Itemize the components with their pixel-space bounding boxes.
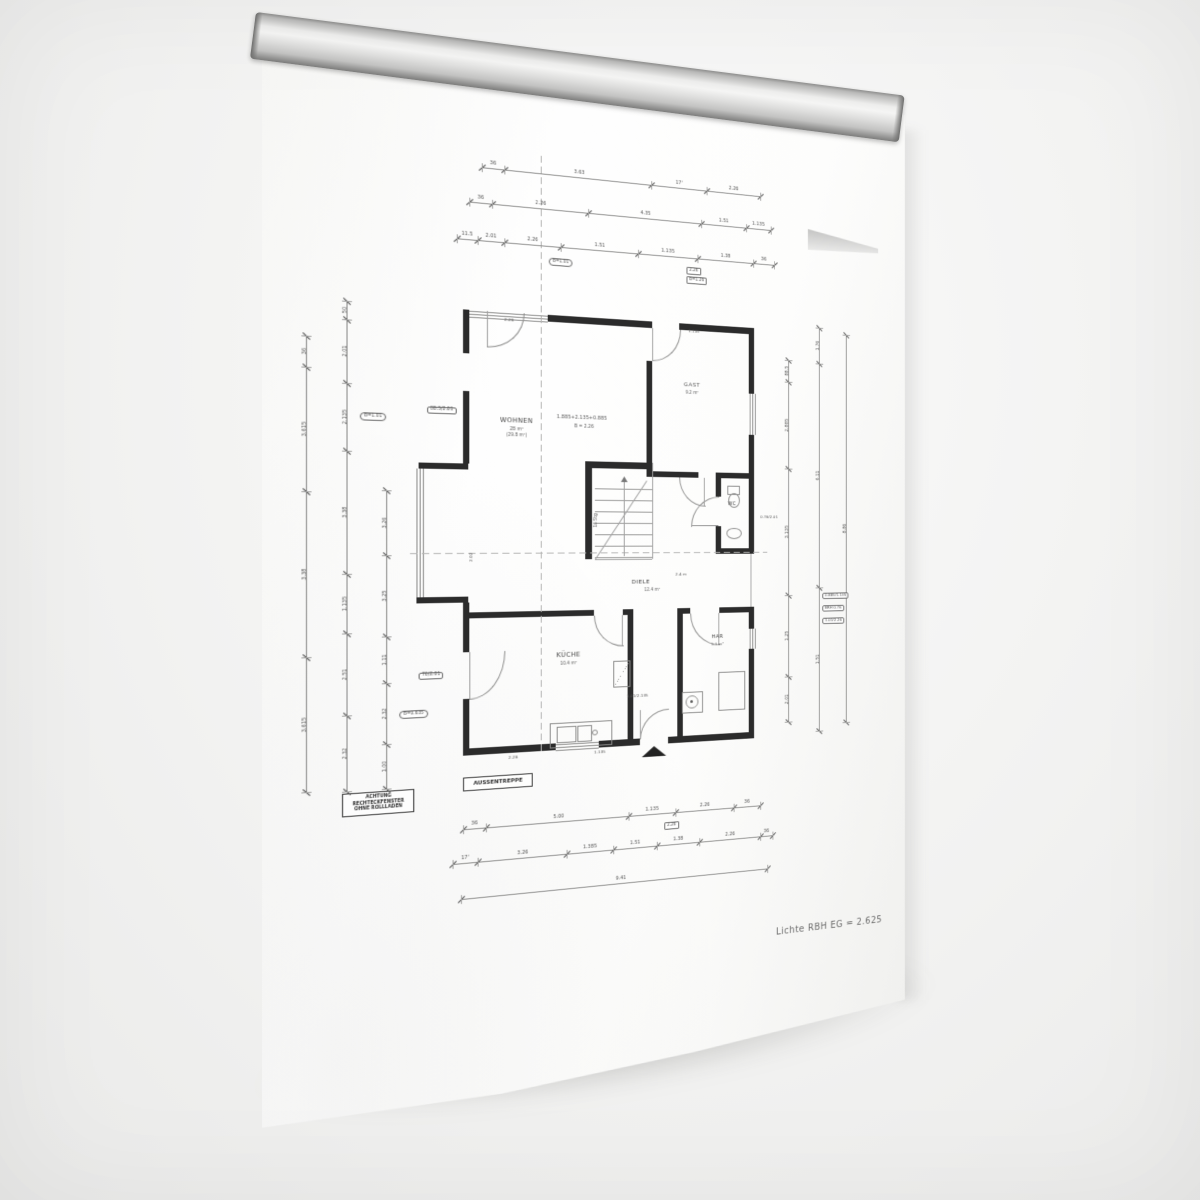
room-label-diele: DIELE <box>621 579 661 586</box>
extension-line <box>342 451 352 452</box>
dimension-value: 3.38 <box>301 559 308 590</box>
wall <box>647 361 653 471</box>
dimension-value: 3.615 <box>301 709 308 740</box>
micro-annotation: B = 2.26 <box>574 425 593 430</box>
door-leaf <box>469 652 470 699</box>
micro-annotation: 1.135 <box>688 329 699 334</box>
micro-annotation: 2.02 <box>470 553 475 562</box>
dimension-value: 2.32 <box>382 698 389 729</box>
stove-icon <box>613 660 630 687</box>
dimension-value: 2.135 <box>342 401 349 432</box>
product-photo: WOHNEN 28 m² (29.8 m²) GAST 9.2 m² WC DI… <box>0 0 1200 1200</box>
extension-line <box>707 187 708 195</box>
extension-line <box>382 490 392 491</box>
extension-line <box>760 802 761 810</box>
dimension-value: 2.01 <box>785 685 790 712</box>
dimension-chain: 88.52.8853.1351.252.01 <box>788 360 789 722</box>
extension-line <box>698 255 699 263</box>
dimension-chain: 1.766.111.51 <box>819 328 820 731</box>
room-label-wc: WC <box>723 502 741 507</box>
stair-edge <box>652 463 653 559</box>
dimension-value: 3.38 <box>342 497 349 528</box>
door-leaf <box>652 328 653 360</box>
bay-window <box>416 468 423 599</box>
dimension-tag: B=0.635 <box>399 710 428 719</box>
extension-line <box>613 846 614 855</box>
extension-line <box>785 595 793 596</box>
extension-line <box>760 193 761 201</box>
extension-line <box>699 838 700 846</box>
wall <box>463 699 469 756</box>
micro-annotation: BRH 0.76 <box>822 605 844 611</box>
dimension-value: 3.26 <box>382 507 389 538</box>
dimension-chain: 3.263.251.112.321.00B=0.635 <box>386 490 387 789</box>
dimension-tag: 2.26 <box>687 267 701 276</box>
extension-line <box>382 555 392 556</box>
door-leaf <box>622 615 623 645</box>
dimension-value: 3.615 <box>301 413 308 444</box>
stair-wall <box>585 461 652 469</box>
extension-line <box>651 181 652 190</box>
dimension-value: 1.76 <box>816 332 821 359</box>
micro-annotation: 0.76/2.01 <box>760 515 778 519</box>
dimension-value: 3.25 <box>382 581 389 612</box>
extension-line <box>701 220 702 228</box>
dimension-value: 2.885 <box>785 411 790 438</box>
extension-line <box>675 808 676 816</box>
door-leaf <box>640 710 641 738</box>
plan-sheet: WOHNEN 28 m² (29.8 m²) GAST 9.2 m² WC DI… <box>442 15 919 1115</box>
wall <box>463 391 469 464</box>
dimension-chain: 8.86 <box>846 335 847 722</box>
wc-sink <box>726 528 741 539</box>
stair-walkline <box>624 480 625 556</box>
micro-annotation: 76/2.01 <box>419 672 444 680</box>
extension-line <box>567 850 568 859</box>
extension-line <box>588 209 589 218</box>
kitchen-sink <box>557 726 577 744</box>
wall <box>463 603 469 653</box>
extension-line <box>561 243 562 252</box>
har-window <box>750 629 756 649</box>
dimension-chain: 502.012.1353.381.1352.512.32B=1.01 <box>346 301 347 792</box>
dimension-tag: B=1.26 <box>687 276 707 285</box>
terrace-door-line <box>751 554 752 607</box>
gast-window <box>750 394 756 435</box>
stair-wall <box>585 468 592 559</box>
door-leaf <box>691 525 718 526</box>
micro-annotation: 2.26 <box>504 318 514 323</box>
extension-line <box>461 895 462 904</box>
paper-sheet <box>262 29 905 1131</box>
micro-annotation: 0.885/1.135 <box>822 592 848 598</box>
dimension-value: 6.11 <box>816 462 821 489</box>
dimension-value: 88.5 <box>785 357 790 384</box>
extension-line <box>816 587 824 588</box>
wall <box>749 649 754 739</box>
wall <box>719 607 754 613</box>
dimension-value: 36 <box>301 335 308 366</box>
wall <box>463 309 469 353</box>
dimension-value: 1.135 <box>342 588 349 619</box>
dimension-chain: 363.6153.383.615 <box>306 336 307 793</box>
extension-line <box>657 842 658 851</box>
micro-annotation: 88.5/2.01 <box>427 406 456 414</box>
kitchen-sink <box>577 725 592 742</box>
dimension-value: 8.86 <box>843 515 848 542</box>
dimension-value: 1.51 <box>816 646 821 673</box>
door-leaf <box>704 478 705 506</box>
wall <box>647 321 653 328</box>
wall-bay <box>419 463 469 470</box>
micro-annotation: 2.26 <box>508 755 517 760</box>
extension-line <box>767 865 768 873</box>
extension-line <box>638 250 639 259</box>
extension-line <box>785 468 793 469</box>
wall <box>716 473 721 497</box>
dimension-tag: 2.26 <box>664 821 678 830</box>
wall-bay <box>416 597 468 604</box>
dimension-value: 1.00 <box>382 751 389 782</box>
extension-line <box>629 812 630 821</box>
micro-annotation: 16 Stg <box>595 513 600 527</box>
micro-annotation: 2.4 m <box>675 573 686 577</box>
dimension-value: 1.11 <box>382 645 389 676</box>
extension-line <box>301 491 311 492</box>
wall <box>749 435 754 554</box>
wall <box>677 614 683 743</box>
dimension-tag: B=1.01 <box>360 412 386 421</box>
room-label-har: HAR <box>701 634 733 641</box>
door-leaf <box>487 311 488 347</box>
dimension-value: 2.51 <box>342 659 349 690</box>
extension-line <box>342 574 352 575</box>
dimension-value: 2.32 <box>342 738 349 769</box>
micro-annotation: 1.135 <box>594 750 606 755</box>
dimension-value: 1.25 <box>785 622 790 649</box>
wall <box>749 328 754 394</box>
dimension-value: 3.135 <box>785 518 790 545</box>
wall <box>721 473 754 479</box>
dimension-value: 2.01 <box>342 335 349 366</box>
shower-tray <box>718 671 745 711</box>
room-area: 12.4 m² <box>632 589 671 594</box>
dimension-value: 50 <box>342 294 349 325</box>
micro-annotation: 1.01/2.26 <box>822 617 844 623</box>
